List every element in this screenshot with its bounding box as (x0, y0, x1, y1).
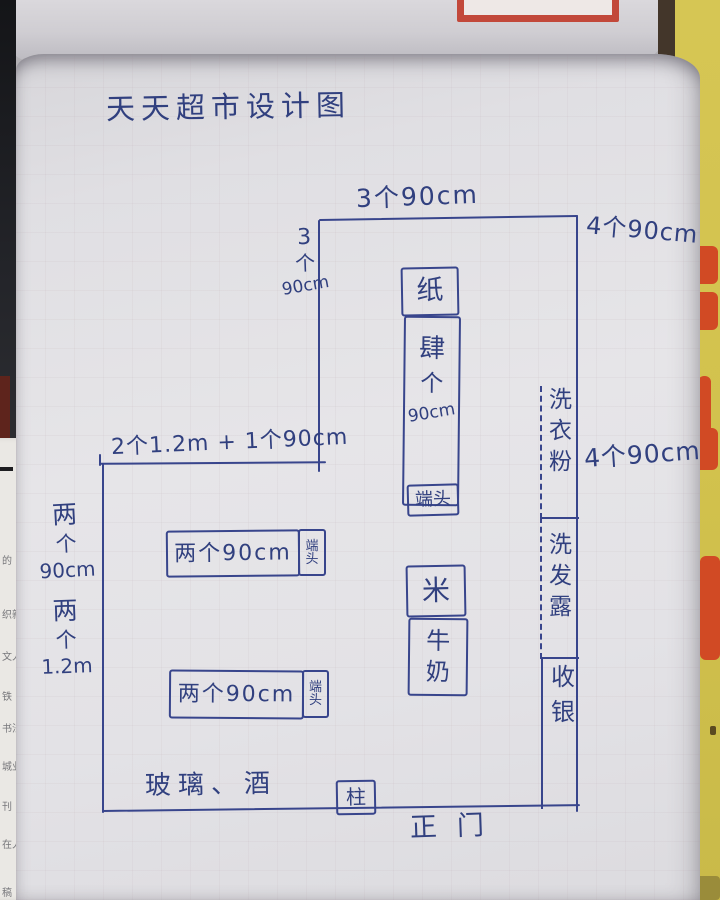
shelf-b: 两个90cm (169, 670, 304, 720)
rice-label: 米 (422, 576, 451, 606)
dimension-tick (99, 454, 101, 466)
entrance-label: 正门 (410, 811, 505, 843)
cashier-label: 收 银 (551, 665, 575, 725)
pillar-label: 柱 (346, 787, 366, 808)
wall-middle (100, 461, 326, 465)
dimension-line: 90cm (39, 559, 96, 583)
dimension-line: 1.2m (41, 655, 93, 678)
cashier-char: 银 (551, 700, 575, 725)
endcap-char: 头 (305, 553, 318, 566)
dimension-line: 两 (52, 598, 78, 625)
laundry-char: 粉 (549, 450, 572, 474)
section-cashier: 收 银 (541, 657, 579, 809)
plan-title: 天天超市设计图 (106, 90, 352, 125)
shampoo-char: 露 (549, 595, 572, 619)
dimension-top-left: 3 个 90cm (285, 225, 325, 296)
dimension-middle: 2个1.2m + 1个90cm (111, 426, 349, 459)
shelf-paper: 纸 (401, 266, 460, 316)
pillar-box: 柱 (336, 780, 377, 816)
dimension-right-upper: 4个90cm (585, 213, 699, 248)
shelf-a: 两个90cm (166, 529, 300, 577)
wall-left (102, 463, 104, 813)
shelf-b-endcap: 端 头 (302, 670, 329, 718)
shampoo-char: 发 (549, 564, 572, 588)
dimension-line: 个 (55, 629, 77, 652)
endcap-label: 端头 (415, 490, 451, 510)
laundry-char: 洗 (549, 388, 572, 412)
floor-plan-drawing: 天天超市设计图 3个90cm 3 个 90cm 4个90cm 4个90cm 2个… (0, 0, 720, 900)
shampoo-label: 洗 发 露 (549, 533, 572, 619)
milk-char: 奶 (426, 660, 450, 685)
dimension-line: 两 (51, 501, 77, 529)
shelf-center-line: 个 (420, 372, 443, 396)
dimension-line: 3 (297, 226, 312, 250)
cashier-char: 收 (551, 665, 575, 690)
shelf-b-label: 两个90cm (178, 683, 296, 707)
laundry-label: 洗 衣 粉 (549, 388, 572, 474)
shelf-center: 肆 个 90cm (402, 316, 461, 507)
dimension-left-lower: 两 个 1.2m (37, 597, 96, 678)
laundry-char: 衣 (549, 419, 572, 443)
wall-top (319, 215, 578, 221)
dimension-line: 个 (295, 253, 316, 275)
shelf-center-endcap: 端头 (407, 483, 460, 516)
section-laundry: 洗 衣 粉 (540, 386, 579, 519)
endcap-char: 头 (309, 694, 322, 707)
shampoo-char: 洗 (549, 533, 572, 557)
dimension-top: 3个90cm (356, 182, 480, 213)
endcap-char: 端 (305, 540, 318, 553)
shelf-rice: 米 (406, 564, 467, 617)
shelf-milk: 牛 奶 (408, 618, 469, 697)
shelf-paper-label: 纸 (416, 277, 443, 306)
shelf-center-line: 肆 (419, 336, 445, 364)
dimension-line: 90cm (281, 274, 331, 300)
milk-char: 牛 (426, 629, 450, 654)
shelf-center-line: 90cm (407, 402, 457, 427)
glass-wine-label: 玻璃、酒 (145, 771, 277, 801)
dimension-left-upper: 两 个 90cm (36, 501, 96, 583)
shelf-a-label: 两个90cm (174, 541, 292, 565)
section-shampoo: 洗 发 露 (540, 517, 579, 659)
shelf-a-endcap: 端 头 (298, 529, 326, 576)
dimension-line: 个 (55, 533, 77, 556)
dimension-right-lower: 4个90cm (583, 438, 701, 472)
photo-of-hand-drawn-floor-plan: 的 织新 文人 铁 书法 城业 刊 在人 稿 天天超市设计图 3 (0, 0, 720, 900)
